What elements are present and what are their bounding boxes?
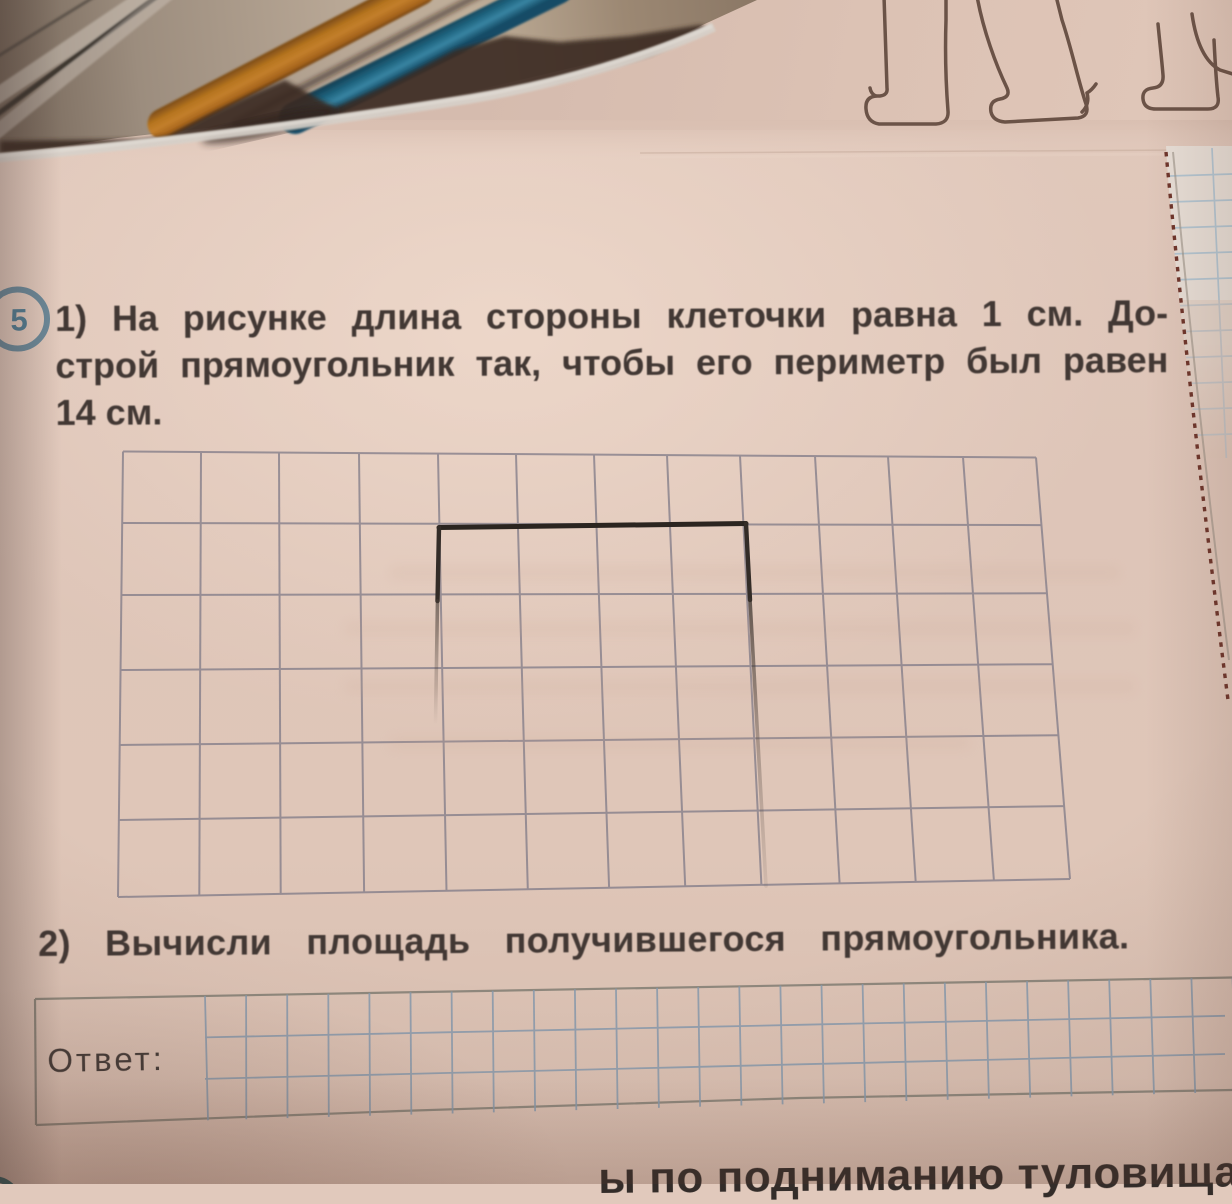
svg-text:5: 5: [10, 302, 28, 337]
